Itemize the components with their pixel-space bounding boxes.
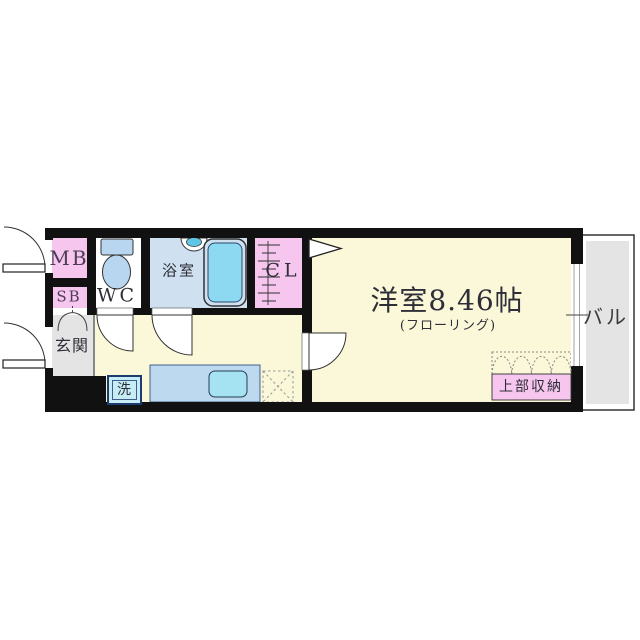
washer-label: 洗 [117,383,131,397]
mb-door-swing [4,227,45,268]
entrance-label: 玄関 [55,338,89,354]
flooring-label: (フローリング) [400,320,496,333]
entrance-door-leaf [3,360,45,368]
kitchen-sink-icon [209,371,247,397]
balcony-label: バル [583,307,629,327]
closet-label: CL [265,262,300,281]
mb-label: MB [49,248,88,268]
sb-label: SB [56,290,81,305]
bathtub-icon [208,243,242,302]
wc-label: WC [97,287,137,306]
bath-door-panel [152,308,192,315]
mb-door-leaf [3,264,45,272]
floorplan-page: MB SB WC 浴室 CL 玄関 洗 洋室8.46帖 (フローリング) 上部収… [0,0,640,640]
upper-storage-label: 上部収納 [499,380,563,394]
floorplan-drawing [0,0,640,640]
bathroom-label: 浴室 [162,264,196,279]
toilet-tank-icon [101,239,133,255]
main-room-label: 洋室8.46帖 [370,287,523,315]
basin-bowl-icon [187,238,202,247]
entrance-door-swing [4,323,45,364]
wc-door-panel [97,308,133,315]
